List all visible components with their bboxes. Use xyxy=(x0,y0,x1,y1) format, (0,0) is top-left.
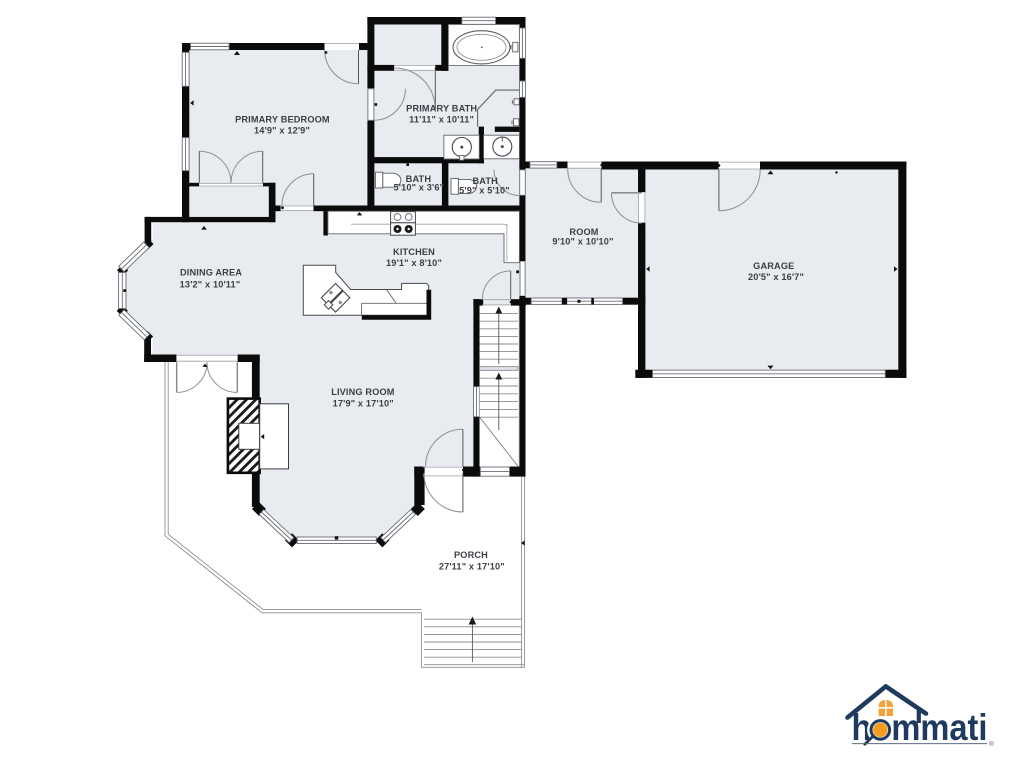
svg-text:5'9" x 5'10": 5'9" x 5'10" xyxy=(459,185,510,195)
svg-text:11'11" x 10'11": 11'11" x 10'11" xyxy=(409,115,474,125)
svg-text:14'9" x 12'9": 14'9" x 12'9" xyxy=(254,126,310,136)
svg-text:®: ® xyxy=(989,740,994,748)
svg-text:19'1" x 8'10": 19'1" x 8'10" xyxy=(386,258,442,268)
svg-text:KITCHEN: KITCHEN xyxy=(393,247,435,257)
svg-text:DINING AREA: DINING AREA xyxy=(180,267,242,277)
svg-text:27'11" x 17'10": 27'11" x 17'10" xyxy=(439,561,505,571)
svg-text:5'10" x 3'6": 5'10" x 3'6" xyxy=(393,182,444,192)
svg-text:LIVING ROOM: LIVING ROOM xyxy=(331,387,395,397)
svg-text:13'2" x 10'11": 13'2" x 10'11" xyxy=(180,279,241,289)
svg-text:PRIMARY BATH: PRIMARY BATH xyxy=(406,103,477,113)
svg-text:9'10" x 10'10": 9'10" x 10'10" xyxy=(552,237,613,247)
svg-text:PORCH: PORCH xyxy=(454,550,488,560)
svg-text:ROOM: ROOM xyxy=(569,227,598,237)
svg-text:20'5" x 16'7": 20'5" x 16'7" xyxy=(748,272,804,282)
svg-text:PRIMARY BEDROOM: PRIMARY BEDROOM xyxy=(235,115,330,125)
svg-text:GARAGE: GARAGE xyxy=(753,261,794,271)
svg-text:BATH: BATH xyxy=(472,176,498,186)
svg-text:17'9" x 17'10": 17'9" x 17'10" xyxy=(333,398,394,408)
